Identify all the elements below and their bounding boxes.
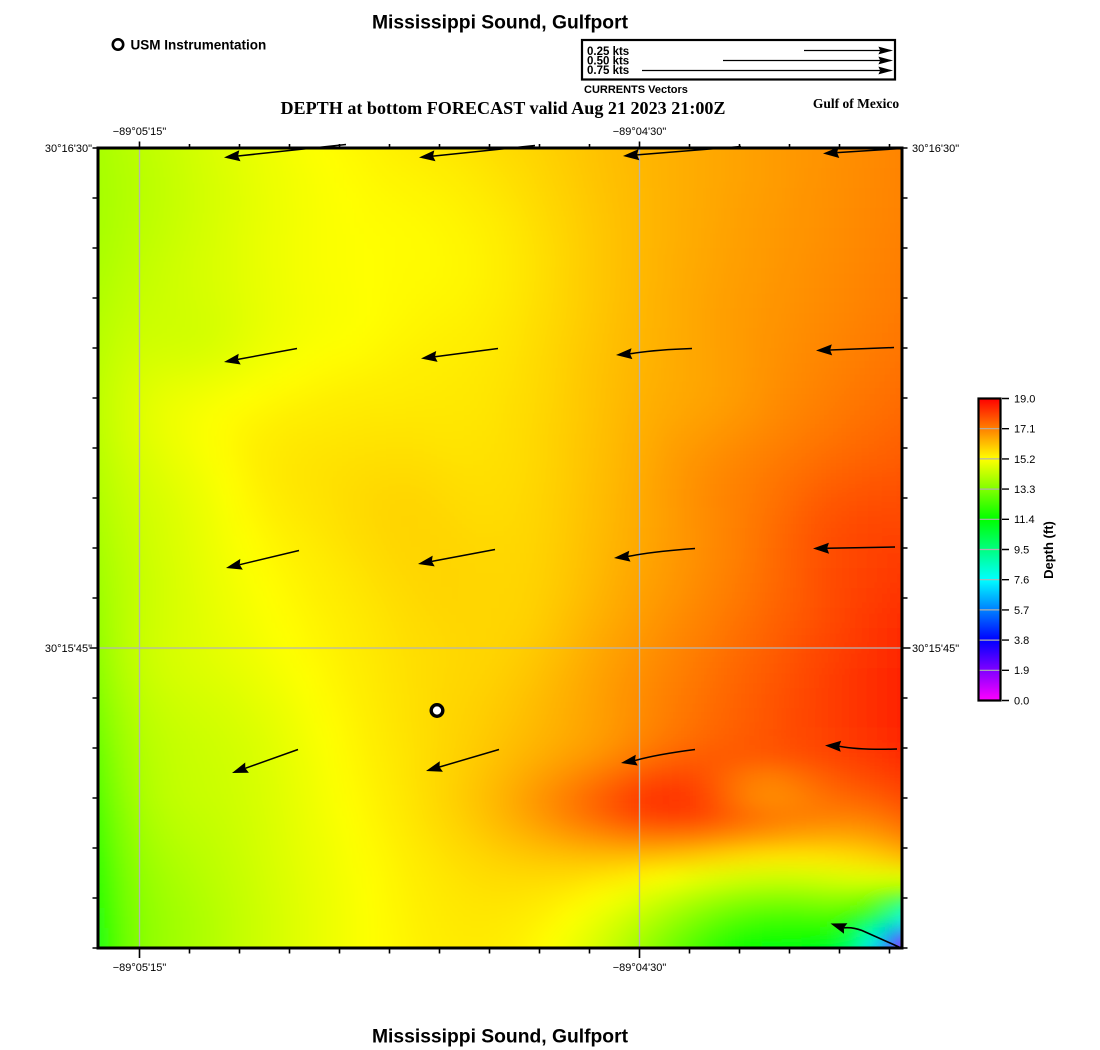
svg-text:−89°04'30": −89°04'30" bbox=[613, 962, 667, 974]
svg-text:−89°04'30": −89°04'30" bbox=[613, 126, 667, 138]
svg-text:Mississippi Sound, Gulfport: Mississippi Sound, Gulfport bbox=[372, 1027, 629, 1048]
svg-text:CURRENTS Vectors: CURRENTS Vectors bbox=[584, 84, 688, 96]
svg-text:0.75 kts: 0.75 kts bbox=[587, 65, 629, 77]
svg-text:5.7: 5.7 bbox=[1014, 605, 1029, 617]
svg-text:30°16'30": 30°16'30" bbox=[912, 143, 959, 155]
svg-text:−89°05'15": −89°05'15" bbox=[113, 962, 167, 974]
svg-text:−89°05'15": −89°05'15" bbox=[113, 126, 167, 138]
svg-text:19.0: 19.0 bbox=[1014, 393, 1035, 405]
svg-text:1.9: 1.9 bbox=[1014, 665, 1029, 677]
svg-text:Depth (ft): Depth (ft) bbox=[1041, 521, 1056, 579]
svg-text:Mississippi Sound, Gulfport: Mississippi Sound, Gulfport bbox=[372, 13, 629, 34]
svg-text:Gulf of Mexico: Gulf of Mexico bbox=[813, 96, 899, 111]
svg-text:3.8: 3.8 bbox=[1014, 635, 1029, 647]
svg-text:0.0: 0.0 bbox=[1014, 695, 1029, 707]
svg-text:9.5: 9.5 bbox=[1014, 544, 1029, 556]
svg-text:17.1: 17.1 bbox=[1014, 424, 1035, 436]
svg-text:30°15'45": 30°15'45" bbox=[912, 643, 959, 655]
svg-text:DEPTH at bottom FORECAST valid: DEPTH at bottom FORECAST valid Aug 21 20… bbox=[280, 98, 725, 118]
svg-text:13.3: 13.3 bbox=[1014, 484, 1035, 496]
svg-text:15.2: 15.2 bbox=[1014, 454, 1035, 466]
svg-text:USM Instrumentation: USM Instrumentation bbox=[131, 38, 267, 53]
svg-text:30°15'45": 30°15'45" bbox=[45, 643, 92, 655]
svg-text:30°16'30": 30°16'30" bbox=[45, 143, 92, 155]
svg-text:11.4: 11.4 bbox=[1014, 514, 1035, 526]
svg-text:7.6: 7.6 bbox=[1014, 575, 1029, 587]
